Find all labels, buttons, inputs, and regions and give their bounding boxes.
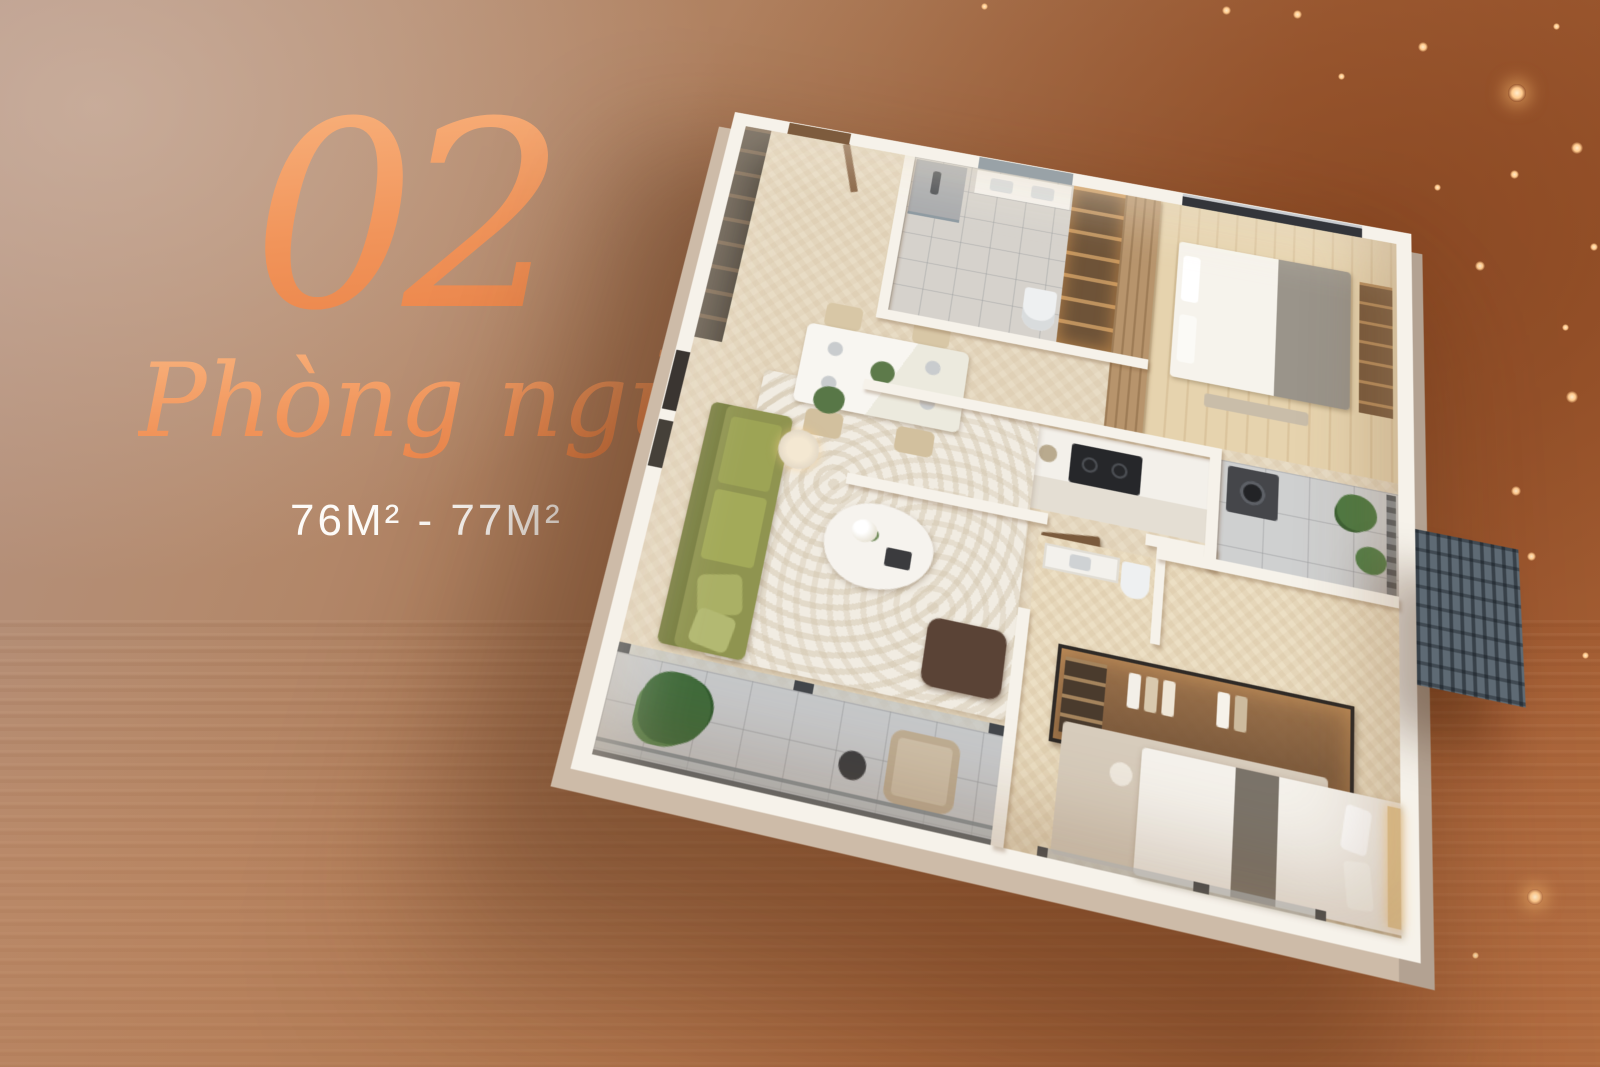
sparkle-icon [1508, 84, 1526, 102]
shower [907, 159, 967, 223]
bed-runner [1230, 767, 1279, 907]
hanging-clothes [1234, 695, 1248, 733]
sparkle-icon [1434, 184, 1441, 191]
ac-louver-ledge [1415, 529, 1526, 708]
pillow [1181, 255, 1201, 303]
washer-door-icon [1239, 479, 1266, 508]
bed-bedroom-2 [1170, 241, 1351, 410]
sparkle-icon [1527, 889, 1543, 905]
sparkle-icon [1511, 486, 1521, 496]
pillow [1176, 314, 1197, 365]
sofa-cushion [700, 488, 767, 568]
area-range: 76M² - 77M² [290, 496, 563, 546]
ensuite-toilet [1119, 561, 1150, 602]
cooktop [1068, 443, 1143, 496]
sparkle-icon [1553, 23, 1560, 30]
sparkle-icon [1590, 243, 1598, 251]
plant [1337, 491, 1377, 535]
hanging-clothes [1144, 676, 1159, 714]
ensuite-vanity [1042, 543, 1120, 584]
counter-props [1038, 443, 1058, 464]
basin [1031, 185, 1055, 201]
table-book [884, 547, 912, 571]
bedroom-2-window [1182, 194, 1362, 238]
headboard-glow [1387, 806, 1401, 930]
sparkle-icon [1571, 142, 1583, 154]
sparkle-icon [1293, 10, 1302, 19]
basin [1069, 554, 1092, 572]
sparkle-icon [1566, 391, 1578, 403]
sparkle-icon [1475, 261, 1485, 271]
washing-machine [1226, 465, 1279, 521]
sparkle-icon [1472, 952, 1479, 959]
sparkle-icon [1338, 73, 1345, 80]
flower-vase [850, 517, 879, 545]
sparkle-icon [981, 3, 988, 10]
plant [1355, 544, 1386, 578]
toilet [1020, 287, 1057, 334]
unit-label: Phòng ngủ [138, 338, 694, 466]
pillow [1343, 860, 1374, 912]
balcony-plant [632, 666, 717, 752]
ensuite-wall [1150, 559, 1166, 646]
sparkle-icon [1582, 652, 1589, 659]
burner-icon [1111, 462, 1128, 480]
sparkle-icon [1527, 552, 1536, 561]
hanging-clothes [1126, 672, 1141, 710]
unit-number: 02 [252, 78, 552, 357]
bedroom-2-wardrobe [1359, 282, 1393, 419]
sparkle-icon [1562, 324, 1569, 331]
sofa-cushion [717, 416, 782, 493]
page: { "hero": { "unit_number": "02", "unit_l… [0, 0, 1600, 1067]
hanging-clothes [1161, 680, 1176, 718]
sparkle-icon [1222, 6, 1231, 15]
utility-railing [1386, 495, 1396, 606]
basin [989, 178, 1013, 194]
sparkle-icon [1510, 170, 1519, 179]
burner-icon [1081, 456, 1098, 474]
headline-block: 02 Phòng ngủ 76M² - 77M² [0, 0, 680, 620]
place-setting [924, 359, 941, 376]
place-setting [826, 341, 844, 358]
hanging-clothes [1216, 691, 1230, 729]
shower-head-icon [930, 171, 942, 195]
balcony-side-table [836, 748, 868, 783]
pillow [1340, 803, 1372, 857]
sparkle-icon [1418, 42, 1428, 52]
